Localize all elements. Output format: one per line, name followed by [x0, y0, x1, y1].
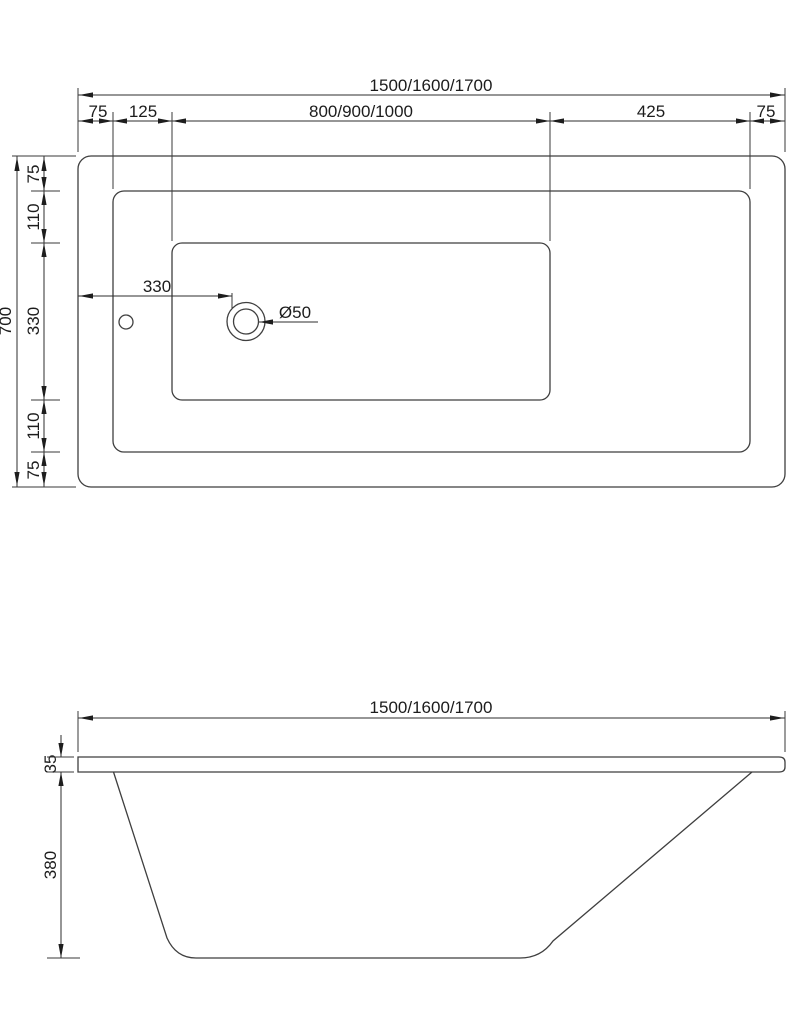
tub-depth-label: 380	[41, 851, 60, 879]
arrowhead	[218, 293, 232, 298]
segment-width-label: 75	[757, 102, 776, 121]
tub-outer-edge	[78, 156, 785, 487]
arrowhead	[41, 191, 46, 205]
arrowhead	[736, 118, 750, 123]
drain-offset-label: 330	[143, 277, 171, 296]
segment-width-label: 425	[637, 102, 665, 121]
arrowhead	[41, 400, 46, 414]
arrowhead	[172, 118, 186, 123]
rim-profile	[78, 757, 785, 772]
arrowhead	[770, 715, 784, 720]
side-overall-length-label: 1500/1600/1700	[370, 698, 493, 717]
arrowhead	[259, 319, 273, 324]
body-profile	[114, 772, 753, 958]
tub-basin-edge	[172, 243, 550, 400]
overall-width-label: 1500/1600/1700	[370, 76, 493, 95]
arrowhead	[113, 118, 127, 123]
segment-depth-label: 75	[24, 165, 43, 184]
segment-depth-label: 330	[24, 307, 43, 335]
arrowhead	[770, 92, 784, 97]
arrowhead	[41, 386, 46, 400]
side-view-dimensions: 1500/1600/1700 35 380	[41, 698, 785, 958]
segment-depth-label: 110	[24, 412, 43, 439]
drain-diameter-label: Ø50	[279, 303, 311, 322]
arrowhead	[58, 944, 63, 958]
drawing-canvas: 1500/1600/1700 75 125 800/900/1000 425 7…	[0, 0, 790, 1034]
arrowhead	[79, 293, 93, 298]
segment-width-label: 800/900/1000	[309, 102, 413, 121]
bathtub-technical-drawing: 1500/1600/1700 75 125 800/900/1000 425 7…	[0, 0, 790, 1034]
overall-depth-label: 700	[0, 307, 15, 335]
tub-rim-inner-edge	[113, 191, 750, 452]
side-view	[78, 757, 785, 958]
arrowhead	[536, 118, 550, 123]
segment-depth-label: 75	[24, 461, 43, 480]
arrowhead	[79, 92, 93, 97]
segment-width-label: 75	[89, 102, 108, 121]
arrowhead	[158, 118, 172, 123]
arrowhead	[14, 157, 19, 171]
top-view-dimensions: 1500/1600/1700 75 125 800/900/1000 425 7…	[0, 76, 785, 487]
arrowhead	[41, 243, 46, 257]
drain-inner-circle	[234, 309, 259, 334]
arrowhead	[14, 472, 19, 486]
segment-width-label: 125	[129, 102, 157, 121]
top-view	[78, 156, 785, 487]
segment-depth-label: 110	[24, 203, 43, 230]
arrowhead	[550, 118, 564, 123]
arrowhead	[79, 715, 93, 720]
overflow-hole	[119, 315, 133, 329]
